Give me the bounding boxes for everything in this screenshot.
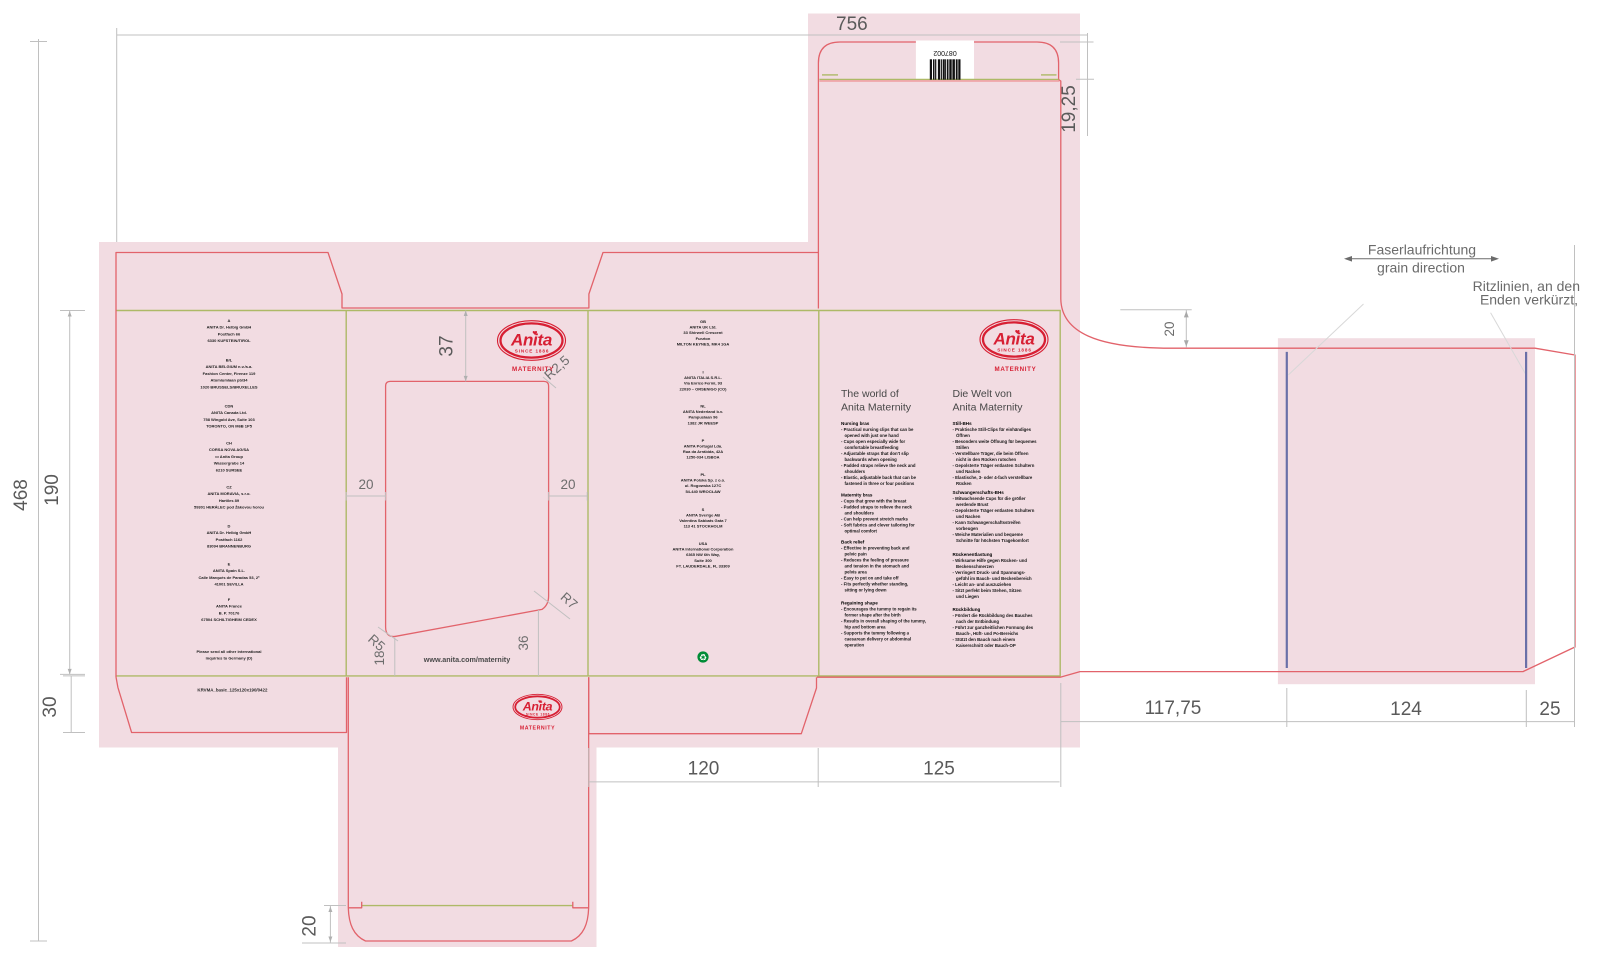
svg-text:20: 20: [1162, 321, 1177, 336]
svg-text:190: 190: [42, 474, 63, 506]
svg-text:MATERNITY: MATERNITY: [520, 726, 555, 732]
svg-text:MATERNITY: MATERNITY: [995, 366, 1037, 373]
svg-text:Enden verkürzt,: Enden verkürzt,: [1480, 292, 1578, 308]
svg-text:grain direction: grain direction: [1377, 260, 1465, 276]
svg-text:SINCE 1886: SINCE 1886: [997, 347, 1032, 352]
svg-text:120: 120: [688, 759, 720, 780]
svg-text:25: 25: [1539, 699, 1560, 720]
svg-text:MATERNITY: MATERNITY: [512, 366, 554, 373]
svg-text:125: 125: [923, 759, 955, 780]
svg-text:756: 756: [836, 14, 868, 35]
svg-text:Back relief - Effective in pre: Back relief - Effective in preventing ba…: [841, 540, 911, 593]
svg-text:468: 468: [11, 479, 32, 511]
svg-text:20: 20: [560, 477, 575, 492]
svg-text:18: 18: [372, 650, 387, 665]
svg-text:20: 20: [300, 915, 321, 936]
svg-text:087002: 087002: [933, 49, 956, 56]
svg-text:Still-BHs - Praktische Still-C: Still-BHs - Praktische Still-Clips für e…: [953, 421, 1038, 486]
svg-text:30: 30: [40, 696, 61, 717]
svg-text:Nursing bras - Practical nursi: Nursing bras - Practical nursing clips t…: [841, 421, 917, 486]
svg-text:20: 20: [358, 477, 373, 492]
svg-text:Faserlaufrichtung: Faserlaufrichtung: [1368, 242, 1476, 258]
svg-text:Anita: Anita: [510, 330, 552, 349]
svg-text:36: 36: [516, 635, 531, 650]
svg-text:SINCE 1886: SINCE 1886: [526, 712, 550, 716]
svg-text:124: 124: [1390, 699, 1422, 720]
svg-text:Please send all other internat: Please send all other internationalinqui…: [197, 649, 262, 661]
svg-text:SINCE 1886: SINCE 1886: [515, 348, 550, 353]
svg-text:KRVMA_basic_125x120x190/0422: KRVMA_basic_125x120x190/0422: [197, 688, 268, 693]
svg-text:37: 37: [437, 335, 458, 356]
svg-text:Rückenentlastung - Wirksame Hi: Rückenentlastung - Wirksame Hilfe gegen …: [953, 552, 1033, 599]
svg-text:♻: ♻: [699, 652, 707, 662]
svg-text:117,75: 117,75: [1145, 698, 1202, 719]
svg-text:www.anita.com/maternity: www.anita.com/maternity: [423, 655, 510, 664]
svg-text:Anita: Anita: [992, 329, 1034, 348]
svg-text:19,25: 19,25: [1059, 85, 1080, 133]
